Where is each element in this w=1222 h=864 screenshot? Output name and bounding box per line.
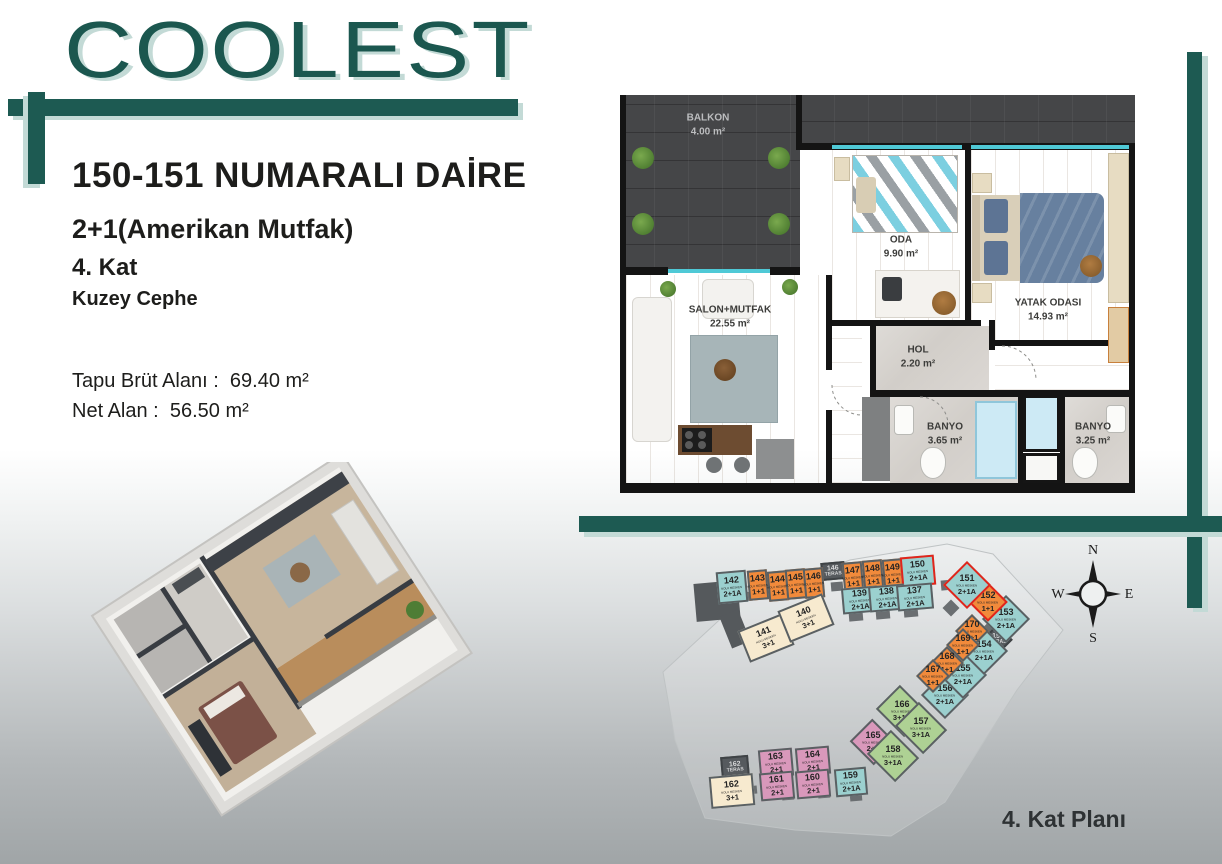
room-label-banyo2: BANYO3.25 m² <box>1075 421 1111 448</box>
keyplan-unit-142: 142NOLU MESKEN2+1A <box>717 571 747 603</box>
keyplan-unit-150: 150NOLU MESKEN2+1A <box>901 556 935 586</box>
compass-icon: N W E S <box>1048 538 1138 648</box>
door-arcs <box>620 95 1135 493</box>
room-label-balkon: BALKON4.00 m² <box>687 112 730 139</box>
keyplan-unit-161: 161NOLU MESKEN2+1 <box>760 772 794 800</box>
keyplan-unit-158: 158NOLU MESKEN3+1A <box>873 739 913 773</box>
keyplan-caption: 4. Kat Planı <box>1002 806 1126 833</box>
brochure-page: { "brand":{"logo_text":"COOLEST","accent… <box>0 0 1222 864</box>
decor-bar-vertical-top <box>28 92 45 184</box>
keyplan-connector <box>943 600 960 617</box>
keyplan: 146TERAS162TERAS153TERAS142NOLU MESKEN2+… <box>645 540 1065 840</box>
keyplan-unit-160: 160NOLU MESKEN2+1 <box>796 770 830 798</box>
isometric-3d-view <box>75 462 515 842</box>
room-label-oda: ODA9.90 m² <box>884 234 918 261</box>
room-label-banyo1: BANYO3.65 m² <box>927 421 963 448</box>
apartment-type: 2+1(Amerikan Mutfak) <box>72 214 353 245</box>
svg-text:W: W <box>1051 587 1065 602</box>
keyplan-unit-159: 159NOLU MESKEN2+1A <box>835 768 867 796</box>
svg-text:N: N <box>1088 543 1098 558</box>
floorplan-2d: BALKON4.00 m² SALON+MUTFAK22.55 m² ODA9.… <box>620 95 1135 493</box>
keyplan-unit-143: 143NOLU MESKEN1+1 <box>748 570 768 600</box>
floor-line: 4. Kat <box>72 254 137 282</box>
svg-text:S: S <box>1089 631 1097 646</box>
net-area-line: Net Alan : 56.50 m² <box>72 400 249 423</box>
decor-bar-horizontal-top <box>8 99 518 116</box>
keyplan-unit-140: 140NOLU MESKEN3+1 <box>782 601 830 635</box>
keyplan-unit-167: 167NOLU MESKEN1+1 <box>921 664 945 688</box>
room-label-yatak: YATAK ODASI14.93 m² <box>1015 297 1082 324</box>
apartment-title: 150-151 NUMARALI DAİRE <box>72 156 526 196</box>
room-label-hol: HOL2.20 m² <box>901 344 935 371</box>
keyplan-unit-151: 151NOLU MESKEN2+1A <box>950 568 984 602</box>
keyplan-unit-137: 137NOLU MESKEN2+1A <box>897 584 933 610</box>
gross-area-line: Tapu Brüt Alanı : 69.40 m² <box>72 370 309 393</box>
brand-logo: COOLEST <box>64 4 532 96</box>
decor-bar-horizontal-bottom <box>579 516 1222 532</box>
svg-text:E: E <box>1125 587 1134 602</box>
keyplan-unit-162: 162NOLU MESKEN3+1 <box>710 775 754 807</box>
facade-line: Kuzey Cephe <box>72 288 198 311</box>
room-label-salon: SALON+MUTFAK22.55 m² <box>689 304 772 331</box>
